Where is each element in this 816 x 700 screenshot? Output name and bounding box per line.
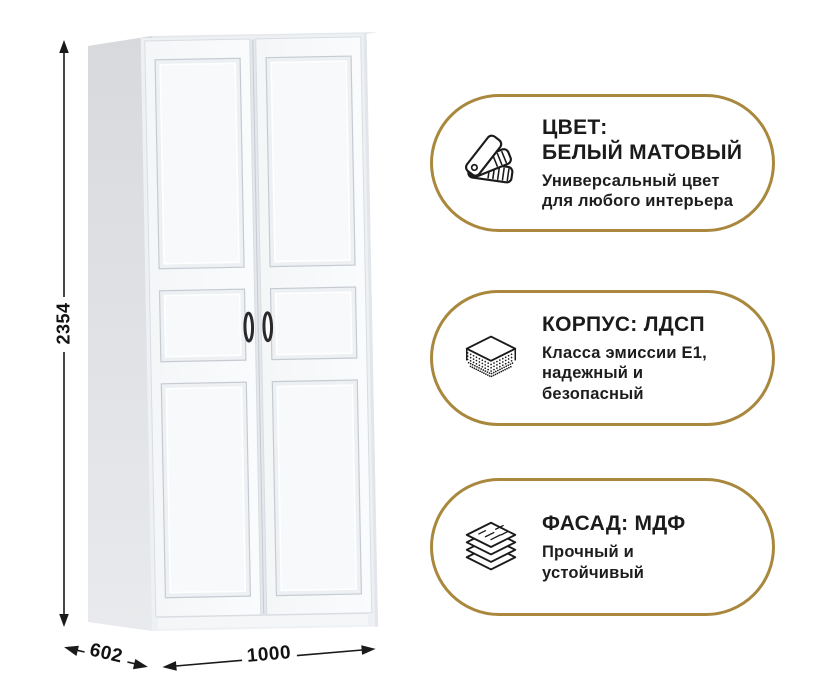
badge-subtitle-line: Универсальный цвет <box>542 171 742 192</box>
badge-subtitle: Класса эмиссии Е1, надежный и безопасный <box>542 343 707 405</box>
feature-badge-facade: ФАСАД: МДФ Прочный и устойчивый <box>430 478 775 616</box>
badge-subtitle: Универсальный цвет для любого интерьера <box>542 171 742 212</box>
wardrobe-left-door <box>145 39 261 617</box>
wardrobe-front <box>141 34 378 631</box>
badge-title-line: КОРПУС: ЛДСП <box>542 312 707 337</box>
badge-subtitle-line: для любого интерьера <box>542 191 742 212</box>
feature-badge-color: ЦВЕТ: БЕЛЫЙ МАТОВЫЙ Универсальный цвет д… <box>430 94 775 232</box>
badge-title-line: ФАСАД: МДФ <box>542 511 686 536</box>
chipboard-layers-icon <box>453 333 529 383</box>
badge-title-line: БЕЛЫЙ МАТОВЫЙ <box>542 140 742 165</box>
badge-subtitle-line: безопасный <box>542 384 707 405</box>
badge-title: ЦВЕТ: БЕЛЫЙ МАТОВЫЙ <box>542 115 742 165</box>
badge-subtitle-line: Класса эмиссии Е1, <box>542 343 707 364</box>
wardrobe-right-door <box>256 37 372 615</box>
badge-subtitle-line: надежный и <box>542 363 707 384</box>
dimension-height-label: 2354 <box>54 294 75 354</box>
door-handle-left <box>245 313 253 341</box>
feature-badge-body: КОРПУС: ЛДСП Класса эмиссии Е1, надежный… <box>430 290 775 426</box>
badge-title: ФАСАД: МДФ <box>542 511 686 536</box>
door-handle-right <box>264 313 272 341</box>
badge-subtitle-line: Прочный и <box>542 542 686 563</box>
badge-title: КОРПУС: ЛДСП <box>542 312 707 337</box>
mdf-stack-icon <box>453 518 529 576</box>
badge-title-line: ЦВЕТ: <box>542 115 742 140</box>
badge-subtitle: Прочный и устойчивый <box>542 542 686 583</box>
badge-subtitle-line: устойчивый <box>542 563 686 584</box>
product-infographic: 2354 602 1000 <box>0 0 816 700</box>
color-swatch-fan-icon <box>453 125 529 201</box>
